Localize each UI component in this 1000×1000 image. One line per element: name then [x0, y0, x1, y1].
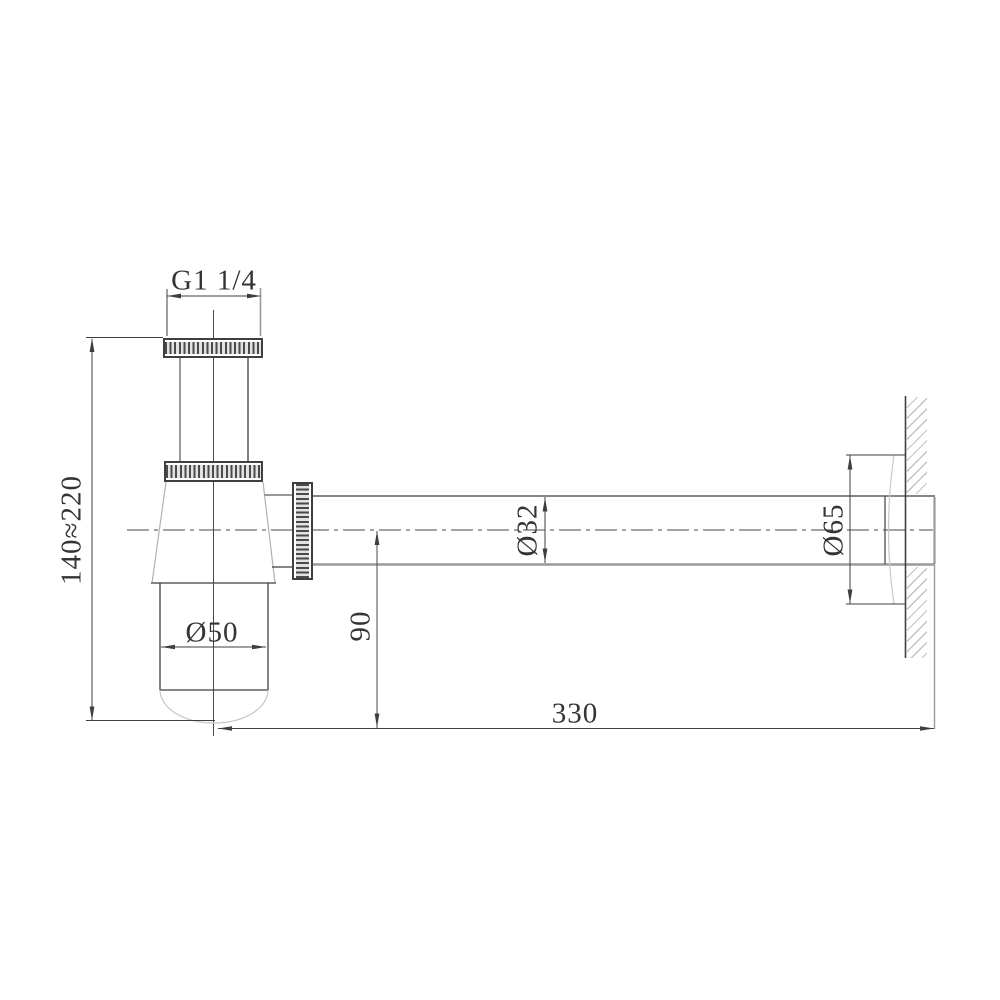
dimension-height: [86, 338, 215, 721]
arrow-left-icon: [161, 645, 175, 650]
lower-knurled-nut: [164, 461, 263, 482]
arrow-down-icon: [90, 707, 95, 721]
flange-diameter-label: Ø65: [820, 504, 849, 557]
arrow-up-icon: [375, 531, 380, 545]
pipe-diameter-label: Ø32: [514, 504, 543, 557]
thread-size-label: G1 1/4: [171, 267, 257, 296]
wall-hatch-upper: [906, 397, 927, 494]
technical-drawing-canvas: G1 1/4 140≈220 Ø50 Ø32 90 Ø65 330: [0, 0, 1000, 1000]
outlet-connectors: [264, 495, 292, 567]
arrow-down-icon: [375, 714, 380, 728]
cup-diameter-label: Ø50: [186, 619, 239, 648]
outlet-drop-label: 90: [347, 611, 376, 642]
height-range-label: 140≈220: [58, 475, 87, 585]
pipe-length-label: 330: [552, 700, 599, 729]
arrow-up-icon: [90, 338, 95, 352]
arrow-up-icon: [848, 456, 853, 470]
arrow-right-icon: [252, 645, 266, 650]
arrow-left-icon: [218, 726, 232, 731]
arrow-right-icon: [920, 726, 934, 731]
wall-hatch-lower: [906, 567, 927, 658]
top-knurled-nut: [163, 338, 263, 358]
arrow-down-icon: [848, 590, 853, 604]
outlet-knurled-nut: [292, 482, 313, 580]
drawing-linework: [0, 0, 1000, 1000]
